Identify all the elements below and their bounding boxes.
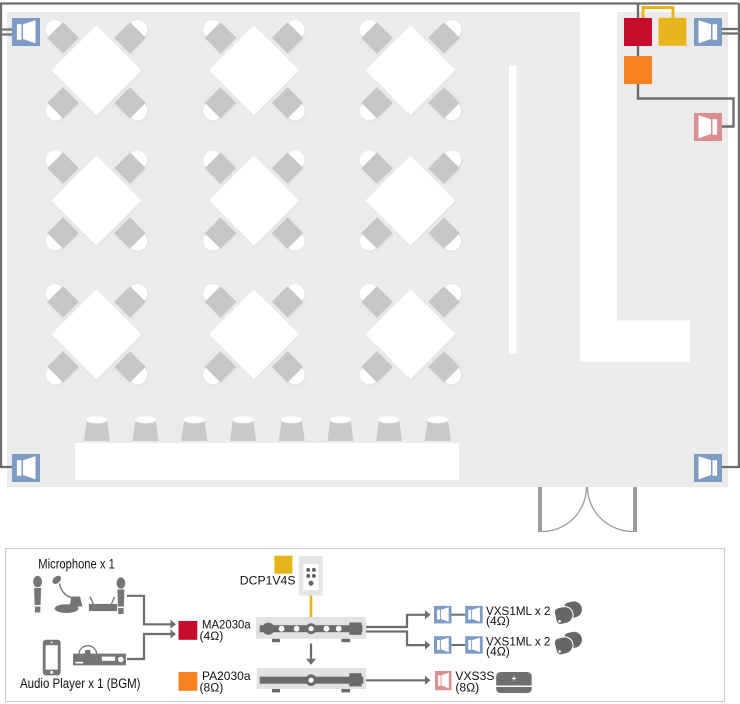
svg-text:(4Ω): (4Ω) [486,614,510,628]
svg-text:(4Ω): (4Ω) [200,629,224,643]
svg-text:(8Ω): (8Ω) [455,680,479,694]
svg-text:Audio Player x 1 (BGM): Audio Player x 1 (BGM) [20,676,141,691]
svg-text:(4Ω): (4Ω) [486,644,510,658]
svg-text:(8Ω): (8Ω) [200,680,224,694]
svg-text:Microphone x 1: Microphone x 1 [38,557,115,572]
svg-text:DCP1V4S: DCP1V4S [240,574,296,588]
